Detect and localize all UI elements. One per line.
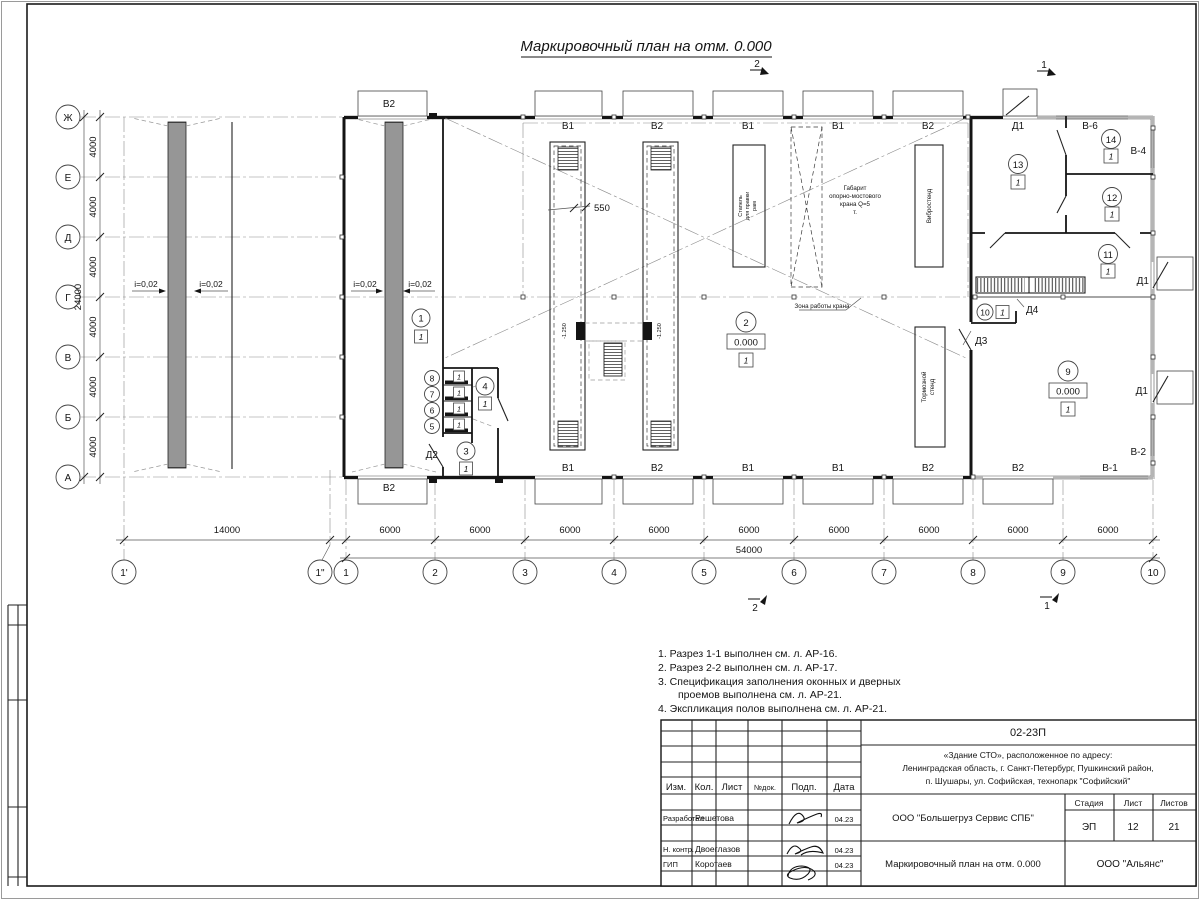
svg-text:Изм.: Изм. [666, 782, 686, 793]
svg-text:4: 4 [482, 382, 487, 393]
svg-text:Е: Е [65, 173, 72, 184]
svg-text:4000: 4000 [88, 256, 99, 277]
svg-text:Решетова: Решетова [695, 813, 734, 823]
svg-text:6000: 6000 [1007, 525, 1028, 536]
plan-title: Маркировочный план на отм. 0.000 [520, 38, 772, 57]
crane-gabarit: Габарит опорно-мостового крана Q=5 т. [791, 127, 881, 287]
svg-text:-1.250: -1.250 [657, 323, 663, 339]
svg-text:6000: 6000 [379, 525, 400, 536]
svg-text:п. Шушары, ул. Софийская, техн: п. Шушары, ул. Софийская, технопарк "Соф… [926, 776, 1131, 786]
svg-text:i=0,02: i=0,02 [408, 279, 432, 289]
svg-text:1: 1 [457, 373, 461, 382]
svg-text:4000: 4000 [88, 136, 99, 157]
page-title: Маркировочный план на отм. 0.000 [520, 38, 772, 55]
svg-text:1: 1 [418, 314, 423, 325]
svg-text:Дата: Дата [833, 782, 855, 793]
svg-text:Лист: Лист [1124, 798, 1143, 808]
svg-text:14: 14 [1106, 135, 1117, 146]
svg-text:1: 1 [343, 568, 349, 579]
svg-text:5: 5 [430, 422, 435, 432]
svg-text:8: 8 [430, 374, 435, 384]
svg-text:Ленинградская область, г. Санк: Ленинградская область, г. Санкт-Петербур… [902, 763, 1153, 773]
inspection-trench-1: -1.250 [550, 142, 585, 450]
hall: Габарит опорно-мостового крана Q=5 т. Зо… [445, 118, 968, 450]
svg-text:Лист: Лист [722, 782, 743, 793]
svg-text:В2: В2 [383, 483, 396, 494]
svg-text:4. Экспликация полов выполнена: 4. Экспликация полов выполнена см. л. АР… [658, 703, 887, 715]
inspection-trench-2: -1.250 [643, 142, 678, 450]
svg-text:Подп.: Подп. [791, 782, 816, 793]
svg-text:В-1: В-1 [1102, 463, 1118, 474]
svg-text:Д: Д [65, 233, 72, 244]
svg-text:04.23: 04.23 [835, 861, 854, 870]
svg-text:Д4: Д4 [1026, 305, 1039, 316]
svg-text:13: 13 [1013, 160, 1024, 171]
staircase [976, 277, 1085, 293]
svg-text:В1: В1 [562, 463, 575, 474]
svg-text:Двоеглазов: Двоеглазов [695, 844, 741, 854]
svg-text:2: 2 [754, 59, 760, 70]
svg-text:Д1: Д1 [1136, 386, 1149, 397]
svg-text:№док.: №док. [754, 783, 776, 792]
vibro-stand: Вибростенд [915, 145, 943, 267]
svg-text:т.: т. [853, 209, 857, 216]
svg-text:4000: 4000 [88, 436, 99, 457]
svg-text:54000: 54000 [736, 545, 762, 556]
svg-text:6000: 6000 [1097, 525, 1118, 536]
sheet-count: 21 [1168, 822, 1180, 833]
svg-text:«Здание СТО», расположенное по: «Здание СТО», расположенное по адресу: [944, 750, 1113, 760]
svg-text:Д3: Д3 [975, 336, 988, 347]
svg-text:7: 7 [881, 568, 887, 579]
svg-text:3. Спецификация заполнения око: 3. Спецификация заполнения оконных и две… [658, 676, 901, 688]
svg-text:Д2: Д2 [426, 450, 439, 461]
svg-text:В2: В2 [922, 463, 935, 474]
column-axis-bubbles: 1' 1" 1 2 3 4 5 6 7 8 9 10 [112, 560, 1165, 584]
svg-text:-1.250: -1.250 [562, 323, 568, 339]
svg-text:8: 8 [970, 568, 976, 579]
svg-text:4: 4 [611, 568, 617, 579]
drain-strip-1 [168, 122, 186, 468]
svg-text:3: 3 [463, 447, 468, 458]
svg-text:6000: 6000 [559, 525, 580, 536]
svg-text:6: 6 [430, 406, 435, 416]
svg-text:Стапель: Стапель [738, 195, 744, 217]
svg-text:Д1: Д1 [1137, 276, 1150, 287]
svg-text:Габарит: Габарит [843, 185, 866, 192]
svg-text:В2: В2 [1012, 463, 1025, 474]
svg-text:В: В [65, 353, 72, 364]
svg-text:1: 1 [483, 399, 488, 409]
svg-text:1: 1 [1000, 308, 1005, 318]
door-vestibule-right-lower [1157, 371, 1193, 404]
section-mark-1-top: 1 [1037, 60, 1056, 76]
svg-text:i=0,02: i=0,02 [199, 279, 223, 289]
svg-text:В2: В2 [651, 121, 664, 132]
svg-text:4000: 4000 [88, 376, 99, 397]
right-block: Д4 Д3 [959, 116, 1153, 477]
window-label: В2 [383, 99, 396, 110]
svg-text:1': 1' [120, 568, 128, 579]
svg-text:6000: 6000 [469, 525, 490, 536]
notes: 1. Разрез 1-1 выполнен см. л. АР-16. 2. … [658, 648, 901, 715]
svg-text:В2: В2 [922, 121, 935, 132]
sheet-number: 12 [1127, 822, 1139, 833]
project-code: 02-23П [1010, 727, 1046, 739]
door-vestibule-top [1003, 89, 1037, 116]
svg-text:3: 3 [522, 568, 528, 579]
svg-text:6: 6 [791, 568, 797, 579]
svg-text:1: 1 [1044, 601, 1050, 612]
brake-stand: Тормозной стенд [915, 327, 945, 447]
svg-text:Коротаев: Коротаев [695, 859, 732, 869]
svg-text:4000: 4000 [88, 196, 99, 217]
svg-text:4000: 4000 [88, 316, 99, 337]
svg-text:550: 550 [594, 203, 610, 214]
svg-text:В2: В2 [651, 463, 664, 474]
svg-text:2. Разрез 2-2 выполнен см. л.: 2. Разрез 2-2 выполнен см. л. АР-17. [658, 662, 837, 674]
svg-text:В-6: В-6 [1082, 121, 1098, 132]
svg-text:проемов выполнена см. л. АР-21: проемов выполнена см. л. АР-21. [678, 689, 842, 701]
svg-text:1: 1 [1066, 405, 1071, 415]
room-markers: 1 1 2 0.000 1 3 1 4 1 8 7 6 5 1 1 1 1 9 … [412, 130, 1122, 476]
svg-text:04.23: 04.23 [835, 846, 854, 855]
frame-straightening-stand: Стапель для правки рам [733, 145, 765, 267]
svg-text:i=0,02: i=0,02 [134, 279, 158, 289]
svg-text:В1: В1 [832, 463, 845, 474]
svg-text:ГИП: ГИП [663, 860, 678, 869]
crane-zone-label: Зона работы крана [795, 298, 861, 310]
svg-text:1: 1 [744, 356, 749, 366]
svg-text:1: 1 [1041, 60, 1047, 71]
section-mark-1-bottom: 1 [1040, 593, 1059, 612]
developer-org: ООО "Большегруз Сервис СПБ" [892, 813, 1034, 824]
svg-text:крана Q=5: крана Q=5 [840, 201, 871, 208]
svg-text:Б: Б [65, 413, 72, 424]
svg-text:1. Разрез 1-1 выполнен см. л.: 1. Разрез 1-1 выполнен см. л. АР-16. [658, 648, 837, 660]
svg-text:12: 12 [1107, 193, 1118, 204]
door-label: Д1 [1012, 121, 1025, 132]
title-block: Изм. Кол. Лист №док. Подп. Дата Разработ… [661, 720, 1196, 886]
drain-strip-2 [385, 122, 403, 468]
svg-text:2: 2 [432, 568, 438, 579]
door-vestibule-right-upper [1157, 257, 1193, 290]
svg-text:Стадия: Стадия [1075, 798, 1104, 808]
svg-text:опорно-мостового: опорно-мостового [829, 193, 881, 200]
svg-text:1: 1 [457, 405, 461, 414]
building-walls [344, 113, 1154, 483]
svg-text:В-2: В-2 [1130, 447, 1146, 458]
ramp-area: i=0,02 i=0,02 i=0,02 i=0,02 [132, 118, 436, 472]
svg-text:Зона работы крана: Зона работы крана [795, 303, 850, 310]
svg-text:14000: 14000 [214, 525, 240, 536]
svg-text:1: 1 [457, 421, 461, 430]
svg-text:6000: 6000 [738, 525, 759, 536]
svg-text:1: 1 [419, 332, 424, 342]
svg-text:04.23: 04.23 [835, 815, 854, 824]
svg-text:Г: Г [65, 293, 71, 304]
svg-text:1: 1 [1109, 152, 1114, 162]
svg-text:стенд: стенд [929, 378, 936, 395]
svg-text:9: 9 [1065, 367, 1070, 378]
trench-width-dim: 550 [548, 203, 610, 214]
svg-text:6000: 6000 [918, 525, 939, 536]
svg-text:2: 2 [743, 318, 748, 329]
svg-text:10: 10 [980, 308, 990, 318]
svg-text:В1: В1 [742, 463, 755, 474]
svg-text:Тормозной: Тормозной [921, 371, 928, 402]
section-mark-2-bottom: 2 [748, 595, 767, 614]
svg-text:0.000: 0.000 [734, 338, 758, 349]
svg-text:1: 1 [1110, 210, 1115, 220]
svg-text:В-4: В-4 [1130, 146, 1146, 157]
svg-text:24000: 24000 [73, 284, 84, 310]
section-mark-2-top: 2 [750, 59, 769, 75]
margin-table [8, 605, 27, 886]
svg-text:2: 2 [752, 603, 758, 614]
svg-text:1": 1" [315, 568, 325, 579]
svg-text:7: 7 [430, 390, 435, 400]
svg-text:9: 9 [1060, 568, 1066, 579]
svg-text:Н. контр.: Н. контр. [663, 845, 694, 854]
stage-value: ЭП [1082, 822, 1096, 833]
drawing-sheet: Маркировочный план на отм. 0.000 2 1 2 1 [0, 0, 1200, 900]
svg-text:А: А [65, 473, 72, 484]
svg-text:В1: В1 [562, 121, 575, 132]
svg-text:Ж: Ж [63, 113, 73, 124]
svg-text:5: 5 [701, 568, 707, 579]
svg-text:В1: В1 [742, 121, 755, 132]
svg-text:Вибростенд: Вибростенд [926, 188, 933, 223]
svg-text:для правки: для правки [745, 192, 751, 220]
svg-text:1: 1 [464, 464, 469, 474]
company-name: ООО "Альянс" [1097, 859, 1164, 870]
svg-text:1: 1 [1016, 178, 1021, 188]
svg-text:11: 11 [1103, 250, 1113, 261]
trench-stair [589, 341, 625, 380]
svg-text:10: 10 [1147, 568, 1159, 579]
svg-text:0.000: 0.000 [1056, 387, 1080, 398]
svg-text:рам: рам [752, 201, 758, 211]
drawing-name: Маркировочный план на отм. 0.000 [885, 859, 1041, 870]
svg-text:6000: 6000 [648, 525, 669, 536]
svg-text:i=0,02: i=0,02 [353, 279, 377, 289]
svg-text:Листов: Листов [1160, 798, 1188, 808]
svg-text:6000: 6000 [828, 525, 849, 536]
svg-text:Кол.: Кол. [695, 782, 714, 793]
svg-text:В1: В1 [832, 121, 845, 132]
svg-text:1: 1 [457, 389, 461, 398]
svg-text:1: 1 [1106, 267, 1111, 277]
